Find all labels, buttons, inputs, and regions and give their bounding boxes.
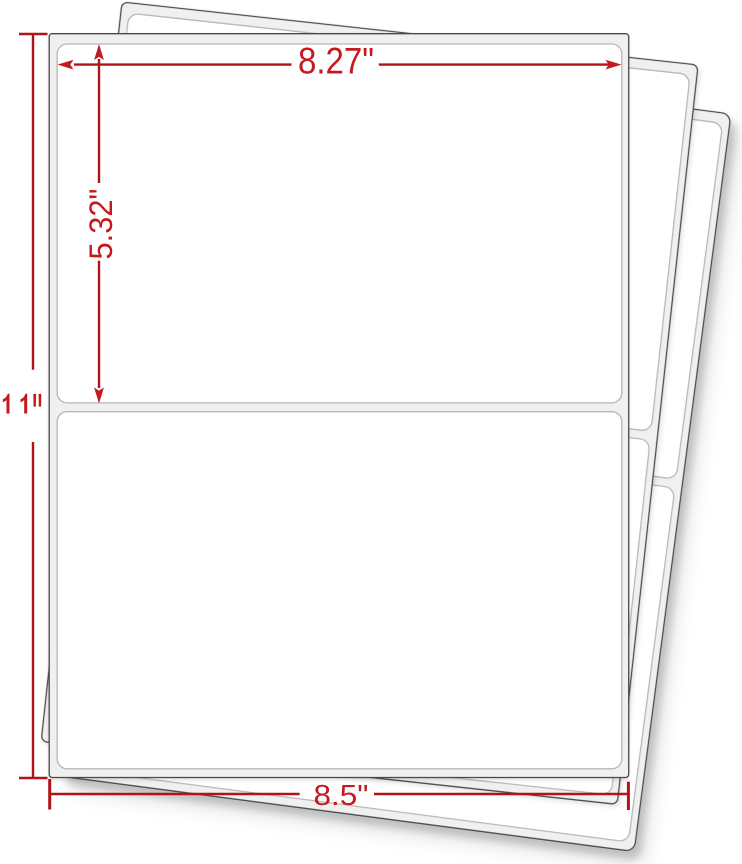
svg-text:8.5": 8.5" (314, 780, 369, 812)
svg-text:5.32": 5.32" (83, 189, 119, 260)
svg-text:8.27": 8.27" (298, 41, 374, 82)
